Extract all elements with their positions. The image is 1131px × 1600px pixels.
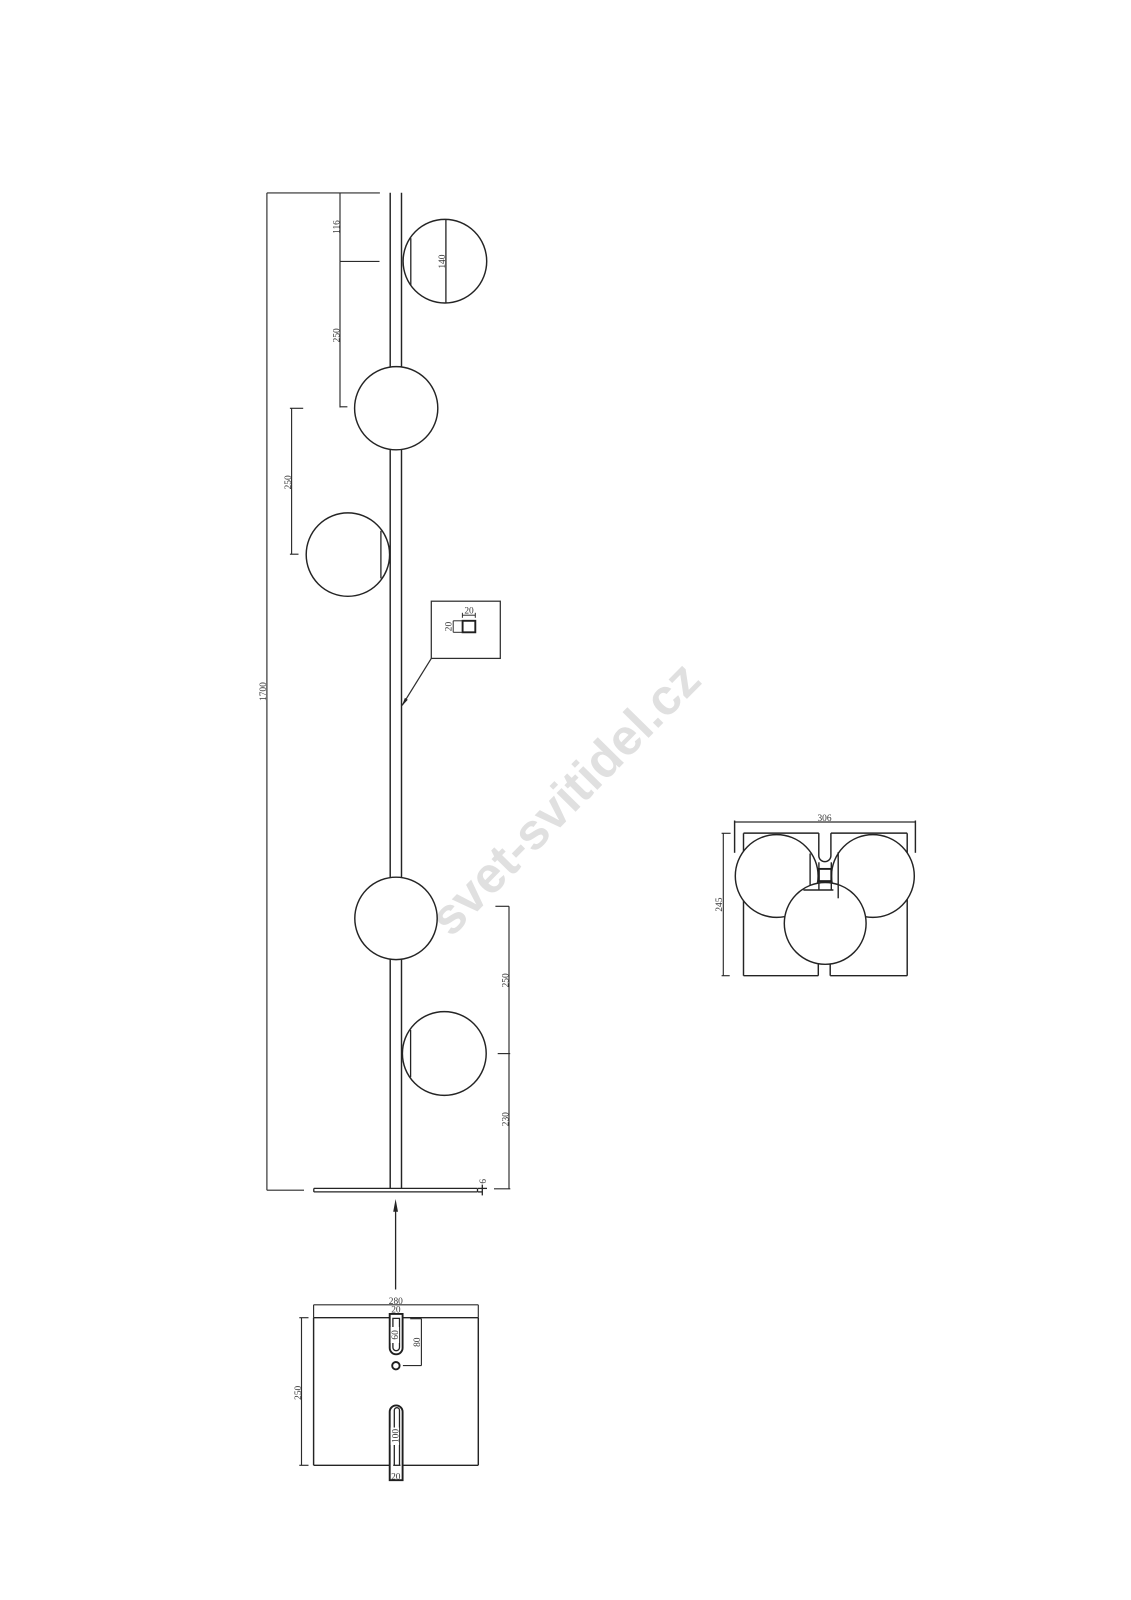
svg-text:140: 140	[438, 254, 448, 268]
svg-text:250: 250	[284, 475, 294, 489]
svg-text:20: 20	[391, 1306, 401, 1316]
svg-text:60: 60	[391, 1330, 401, 1340]
svg-text:20: 20	[391, 1473, 401, 1483]
svg-text:svet-svitidel.cz: svet-svitidel.cz	[418, 650, 711, 946]
svg-text:1700: 1700	[259, 682, 269, 701]
svg-text:100: 100	[392, 1429, 402, 1443]
svg-text:6: 6	[479, 1179, 489, 1184]
svg-text:230: 230	[501, 1112, 511, 1126]
svg-text:250: 250	[332, 328, 342, 342]
svg-text:306: 306	[817, 814, 831, 824]
svg-text:80: 80	[413, 1337, 423, 1347]
svg-text:250: 250	[501, 973, 511, 987]
svg-text:250: 250	[294, 1385, 304, 1399]
svg-text:20: 20	[445, 622, 455, 632]
svg-text:245: 245	[715, 897, 725, 911]
svg-text:116: 116	[332, 220, 342, 234]
svg-text:20: 20	[464, 607, 474, 617]
